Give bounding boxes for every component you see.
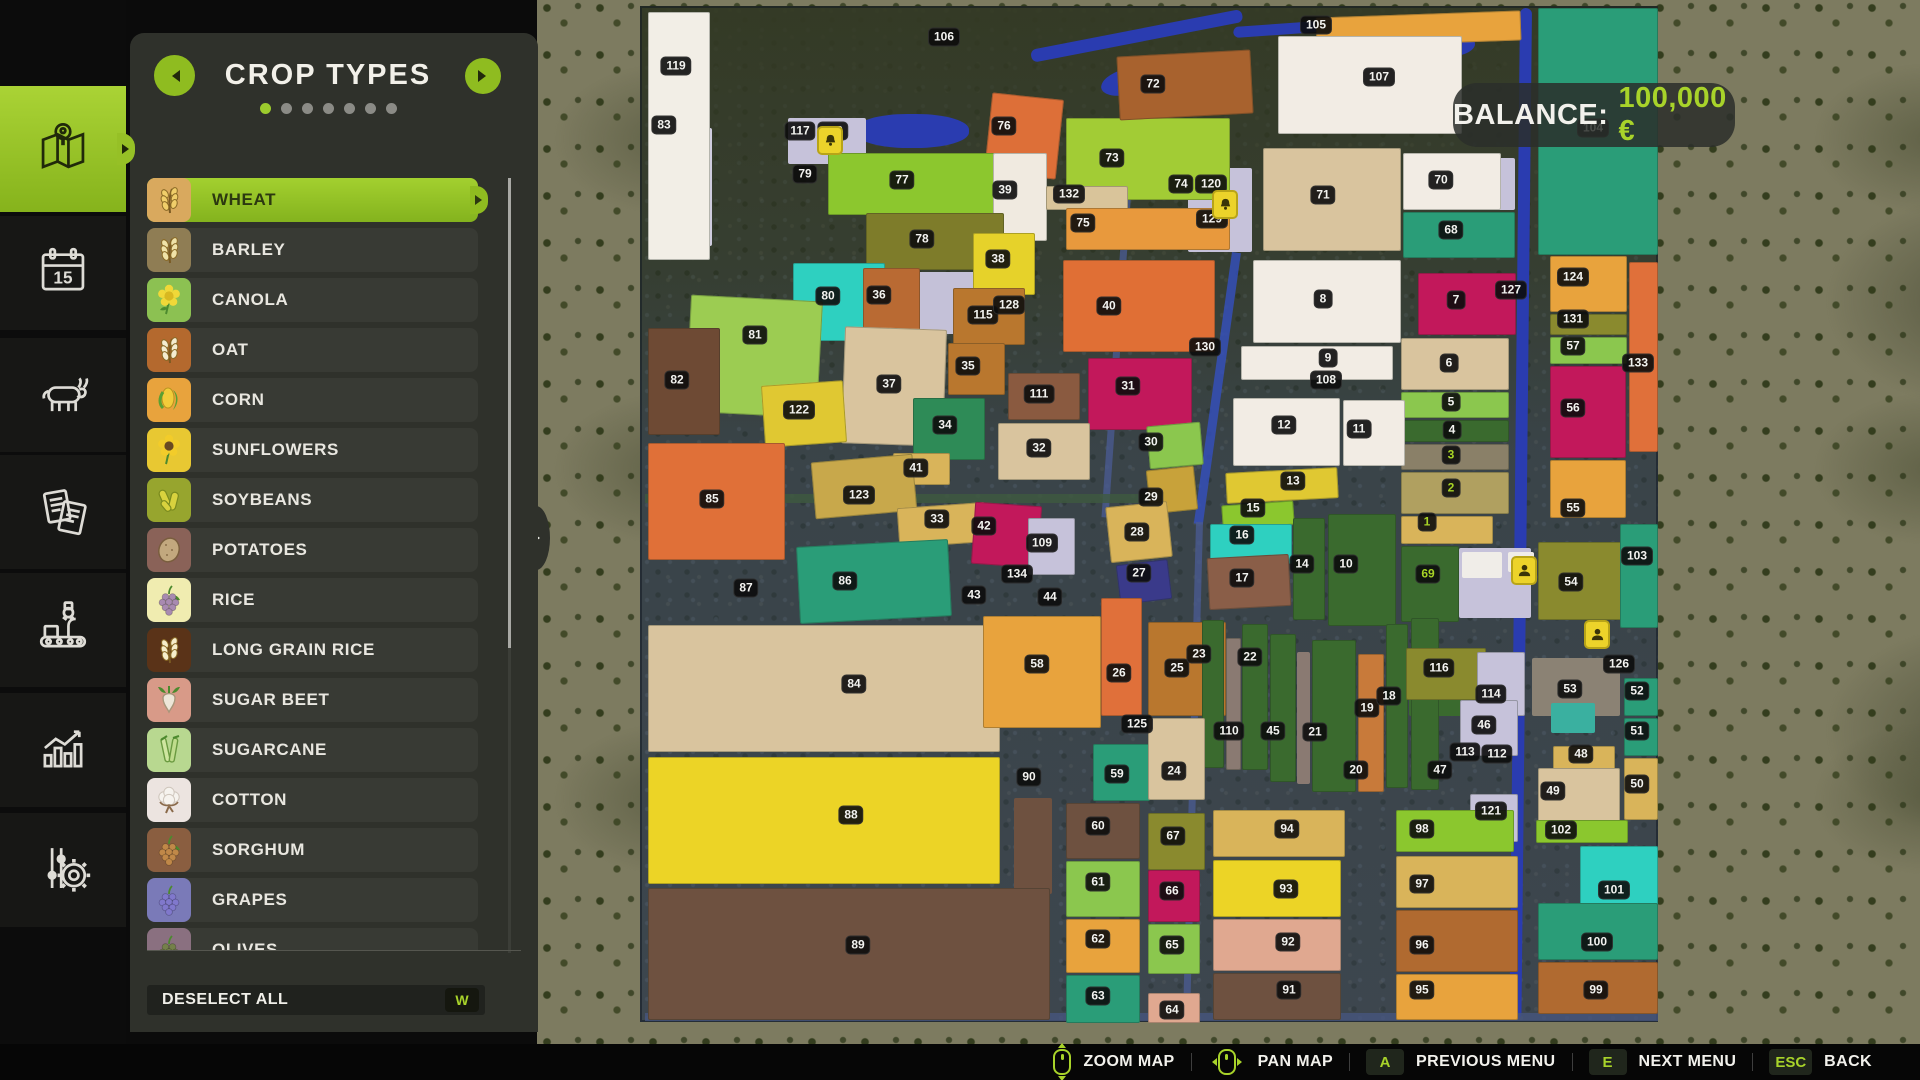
person-map-marker-icon[interactable] xyxy=(1511,556,1537,585)
field-number-badge: 30 xyxy=(1138,433,1163,452)
wheat-icon xyxy=(147,178,191,222)
crop-row-soybeans[interactable]: SOYBEANS xyxy=(147,478,478,522)
balance-value: 100,000 € xyxy=(1618,82,1735,148)
field-number-badge: 56 xyxy=(1560,399,1585,418)
field-number-badge: 98 xyxy=(1409,820,1434,839)
field-number-badge: 125 xyxy=(1121,715,1153,734)
crop-row-long-grain-rice[interactable]: LONG GRAIN RICE xyxy=(147,628,478,672)
field-number-badge: 107 xyxy=(1363,68,1395,87)
mouse-pan-icon xyxy=(1208,1049,1246,1075)
field-number-badge: 3 xyxy=(1442,446,1461,465)
crop-row-cotton[interactable]: COTTON xyxy=(147,778,478,822)
field-number-badge: 1 xyxy=(1418,513,1437,532)
field-number-badge: 17 xyxy=(1229,569,1254,588)
map-field-72[interactable] xyxy=(1116,50,1253,121)
crop-label: SUNFLOWERS xyxy=(212,440,339,460)
field-number-badge: 29 xyxy=(1138,488,1163,507)
field-number-badge: 76 xyxy=(991,117,1016,136)
oat-icon xyxy=(147,328,191,372)
field-number-badge: 64 xyxy=(1159,1001,1184,1020)
field-number-badge: 18 xyxy=(1376,687,1401,706)
field-number-badge: 96 xyxy=(1409,936,1434,955)
field-number-badge: 113 xyxy=(1449,743,1480,762)
field-number-badge: 116 xyxy=(1423,659,1454,678)
field-number-badge: 97 xyxy=(1409,875,1434,894)
panel-collapse-handle[interactable] xyxy=(538,506,554,570)
map-field-19[interactable] xyxy=(1386,624,1408,788)
field-number-badge: 128 xyxy=(993,296,1025,315)
crop-label: POTATOES xyxy=(212,540,307,560)
field-number-badge: 87 xyxy=(733,579,758,598)
crop-row-olives[interactable]: OLIVES xyxy=(147,928,478,951)
field-number-badge: 35 xyxy=(955,357,980,376)
crop-row-potatoes[interactable]: POTATOES xyxy=(147,528,478,572)
field-number-badge: 25 xyxy=(1164,659,1189,678)
map-structure xyxy=(1297,652,1310,784)
field-number-badge: 46 xyxy=(1471,716,1496,735)
crop-label: SORGHUM xyxy=(212,840,305,860)
map-field-84[interactable] xyxy=(648,625,1000,752)
sidebar-item-settings[interactable] xyxy=(0,813,126,927)
crop-types-panel: CROP TYPES WHEATBARLEYCANOLAOATCORNSUNFL… xyxy=(130,33,538,1032)
map-field-31[interactable] xyxy=(1088,358,1192,430)
contracts-icon xyxy=(34,481,92,544)
crop-label: COTTON xyxy=(212,790,287,810)
field-number-badge: 130 xyxy=(1189,338,1221,357)
divider xyxy=(1752,1053,1753,1071)
field-number-badge: 22 xyxy=(1237,648,1262,667)
calendar-icon: 15 xyxy=(34,242,92,305)
field-number-badge: 55 xyxy=(1560,499,1585,518)
field-number-badge: 92 xyxy=(1275,933,1300,952)
field-number-badge: 91 xyxy=(1276,981,1301,1000)
crop-label: RICE xyxy=(212,590,255,610)
crop-row-sorghum[interactable]: SORGHUM xyxy=(147,828,478,872)
crop-row-barley[interactable]: BARLEY xyxy=(147,228,478,272)
field-number-badge: 62 xyxy=(1085,930,1110,949)
field-number-badge: 74 xyxy=(1168,175,1193,194)
pagination-dot-6 xyxy=(365,103,376,114)
crop-label: CORN xyxy=(212,390,264,410)
crop-row-oat[interactable]: OAT xyxy=(147,328,478,372)
field-number-badge: 101 xyxy=(1598,881,1630,900)
pagination-dots xyxy=(200,103,456,114)
potatoes-icon xyxy=(147,528,191,572)
chevron-right-icon xyxy=(478,70,492,82)
input-hint-bar: ZOOM MAPPAN MAPAPREVIOUS MENUENEXT MENUE… xyxy=(0,1044,1920,1080)
balance-display: BALANCE: 100,000 € xyxy=(1453,83,1735,147)
field-number-badge: 133 xyxy=(1622,354,1654,373)
field-number-badge: 88 xyxy=(838,806,863,825)
field-number-badge: 6 xyxy=(1440,354,1459,373)
map-field-23[interactable] xyxy=(1202,620,1224,768)
field-number-badge: 52 xyxy=(1624,682,1649,701)
field-number-badge: 102 xyxy=(1545,821,1577,840)
field-number-badge: 134 xyxy=(1001,565,1033,584)
crop-label: SUGARCANE xyxy=(212,740,327,760)
field-number-badge: 100 xyxy=(1581,933,1613,952)
chevron-left-icon xyxy=(166,70,180,82)
crop-label: CANOLA xyxy=(212,290,288,310)
field-number-badge: 79 xyxy=(792,165,817,184)
field-number-badge: 15 xyxy=(1240,499,1265,518)
svg-text:15: 15 xyxy=(53,267,73,287)
field-number-badge: 48 xyxy=(1568,745,1593,764)
sunflowers-icon xyxy=(147,428,191,472)
field-number-badge: 20 xyxy=(1343,761,1368,780)
field-number-badge: 119 xyxy=(660,57,691,76)
key-badge-a: A xyxy=(1366,1049,1404,1075)
deselect-all-label: DESELECT ALL xyxy=(162,991,288,1009)
prev-category-button[interactable] xyxy=(154,55,195,96)
crop-row-rice[interactable]: RICE xyxy=(147,578,478,622)
field-number-badge: 43 xyxy=(961,586,986,605)
field-number-badge: 4 xyxy=(1443,421,1462,440)
next-category-button[interactable] xyxy=(465,58,501,94)
crop-row-sugar-beet[interactable]: SUGAR BEET xyxy=(147,678,478,722)
field-number-badge: 38 xyxy=(985,250,1010,269)
map-structure xyxy=(1014,798,1052,894)
field-number-badge: 121 xyxy=(1475,802,1507,821)
animals-icon xyxy=(34,364,92,427)
hint-next-menu: ENEXT MENU xyxy=(1589,1049,1737,1075)
map-field-45[interactable] xyxy=(1270,634,1296,782)
field-number-badge: 114 xyxy=(1475,685,1506,704)
field-number-badge: 73 xyxy=(1099,149,1124,168)
field-number-badge: 44 xyxy=(1037,588,1062,607)
map-field-22[interactable] xyxy=(1242,624,1268,770)
bell-map-marker-icon[interactable] xyxy=(1212,190,1238,219)
sidebar-item-animals[interactable] xyxy=(0,338,126,452)
pagination-dot-4 xyxy=(323,103,334,114)
map-structure xyxy=(1551,703,1595,733)
crop-row-sunflowers[interactable]: SUNFLOWERS xyxy=(147,428,478,472)
field-number-badge: 111 xyxy=(1024,385,1055,404)
crop-label: BARLEY xyxy=(212,240,286,260)
field-number-badge: 131 xyxy=(1557,310,1589,329)
field-number-badge: 93 xyxy=(1273,880,1298,899)
field-number-badge: 109 xyxy=(1026,534,1058,553)
sorghum-icon xyxy=(147,828,191,872)
field-number-badge: 10 xyxy=(1333,555,1358,574)
field-number-badge: 94 xyxy=(1274,820,1299,839)
field-number-badge: 33 xyxy=(924,510,949,529)
balance-label: BALANCE: xyxy=(1453,99,1608,132)
crop-row-corn[interactable]: CORN xyxy=(147,378,478,422)
pagination-dot-7 xyxy=(386,103,397,114)
field-number-badge: 23 xyxy=(1186,645,1211,664)
scrollbar-thumb[interactable] xyxy=(508,178,511,648)
crop-row-canola[interactable]: CANOLA xyxy=(147,278,478,322)
field-number-badge: 63 xyxy=(1085,987,1110,1006)
olives-icon xyxy=(147,928,191,951)
crop-row-wheat[interactable]: WHEAT xyxy=(147,178,478,222)
field-number-badge: 86 xyxy=(832,572,857,591)
hint-label: ZOOM MAP xyxy=(1083,1053,1174,1071)
pagination-dot-5 xyxy=(344,103,355,114)
water xyxy=(855,114,969,148)
crop-label: SOYBEANS xyxy=(212,490,312,510)
sidebar-item-map[interactable] xyxy=(0,86,126,212)
field-number-badge: 47 xyxy=(1427,761,1452,780)
game-screen: 1198311711810676737739132757838798036115… xyxy=(0,0,1920,1080)
crop-label: OAT xyxy=(212,340,248,360)
field-number-badge: 90 xyxy=(1016,768,1041,787)
crop-label: LONG GRAIN RICE xyxy=(212,640,375,660)
field-number-badge: 80 xyxy=(815,287,840,306)
field-number-badge: 69 xyxy=(1415,565,1440,584)
field-number-badge: 70 xyxy=(1428,171,1453,190)
field-number-badge: 34 xyxy=(932,416,957,435)
crop-list: WHEATBARLEYCANOLAOATCORNSUNFLOWERSSOYBEA… xyxy=(130,163,538,951)
field-number-badge: 72 xyxy=(1140,75,1165,94)
field-number-badge: 31 xyxy=(1115,377,1140,396)
pagination-dot-2 xyxy=(281,103,292,114)
canola-icon xyxy=(147,278,191,322)
field-number-badge: 66 xyxy=(1159,882,1184,901)
statistics-icon xyxy=(34,719,92,782)
field-number-badge: 95 xyxy=(1409,981,1434,1000)
map-field-86[interactable] xyxy=(796,539,952,624)
divider xyxy=(1191,1053,1192,1071)
sidebar-item-production[interactable] xyxy=(0,573,126,687)
field-number-badge: 106 xyxy=(928,28,960,47)
field-number-badge: 11 xyxy=(1347,420,1372,439)
key-badge-e: E xyxy=(1589,1049,1627,1075)
field-number-badge: 59 xyxy=(1104,765,1129,784)
field-number-badge: 108 xyxy=(1310,371,1342,390)
field-number-badge: 7 xyxy=(1447,291,1466,310)
map-field-119[interactable] xyxy=(648,12,710,260)
field-number-badge: 5 xyxy=(1442,393,1461,412)
panel-title: CROP TYPES xyxy=(200,59,456,92)
grapes-icon xyxy=(147,878,191,922)
map-structure xyxy=(1462,552,1502,578)
field-number-badge: 49 xyxy=(1540,782,1565,801)
field-number-badge: 126 xyxy=(1603,655,1635,674)
field-number-badge: 8 xyxy=(1314,290,1333,309)
field-number-badge: 112 xyxy=(1481,745,1512,764)
corn-icon xyxy=(147,378,191,422)
field-number-badge: 65 xyxy=(1159,936,1184,955)
divider xyxy=(1572,1053,1573,1071)
pagination-dot-1 xyxy=(260,103,271,114)
mouse-scroll-icon xyxy=(1053,1039,1071,1080)
cotton-icon xyxy=(147,778,191,822)
production-icon xyxy=(34,599,92,662)
field-number-badge: 32 xyxy=(1026,439,1051,458)
field-number-badge: 13 xyxy=(1280,472,1305,491)
field-number-badge: 54 xyxy=(1558,573,1583,592)
field-number-badge: 26 xyxy=(1106,664,1131,683)
rice-icon xyxy=(147,578,191,622)
field-number-badge: 78 xyxy=(909,230,934,249)
field-number-badge: 41 xyxy=(903,459,928,478)
sidebar-item-calendar[interactable]: 15 xyxy=(0,216,126,330)
crop-label: SUGAR BEET xyxy=(212,690,329,710)
field-number-badge: 122 xyxy=(783,401,815,420)
barley-icon xyxy=(147,228,191,272)
field-number-badge: 67 xyxy=(1160,827,1185,846)
map-field-88[interactable] xyxy=(648,757,1000,884)
field-number-badge: 16 xyxy=(1229,526,1254,545)
key-badge-esc: ESC xyxy=(1769,1049,1812,1075)
hint-previous-menu: APREVIOUS MENU xyxy=(1366,1049,1555,1075)
map-icon xyxy=(34,118,92,181)
field-number-badge: 71 xyxy=(1310,186,1335,205)
field-number-badge: 127 xyxy=(1495,281,1527,300)
field-number-badge: 83 xyxy=(651,116,676,135)
field-number-badge: 21 xyxy=(1302,723,1327,742)
field-number-badge: 42 xyxy=(971,517,996,536)
field-number-badge: 50 xyxy=(1624,775,1649,794)
main-menu-sidebar: 15 xyxy=(0,0,126,1044)
pagination-dot-3 xyxy=(302,103,313,114)
field-number-badge: 27 xyxy=(1126,564,1151,583)
field-number-badge: 117 xyxy=(784,122,815,141)
field-number-badge: 77 xyxy=(889,171,914,190)
field-number-badge: 53 xyxy=(1557,680,1582,699)
field-number-badge: 14 xyxy=(1289,555,1314,574)
field-number-badge: 9 xyxy=(1319,349,1338,368)
field-number-badge: 81 xyxy=(742,326,767,345)
field-number-badge: 84 xyxy=(841,675,866,694)
crop-label: WHEAT xyxy=(212,190,276,210)
hint-label: NEXT MENU xyxy=(1639,1053,1737,1071)
deselect-all-button[interactable]: DESELECT ALL W xyxy=(147,985,485,1015)
sidebar-item-statistics[interactable] xyxy=(0,693,126,807)
field-number-badge: 68 xyxy=(1438,221,1463,240)
field-number-badge: 123 xyxy=(843,486,875,505)
hint-pan-map: PAN MAP xyxy=(1208,1049,1333,1075)
field-number-badge: 85 xyxy=(699,490,724,509)
field-number-badge: 60 xyxy=(1085,817,1110,836)
map-field-26[interactable] xyxy=(1101,598,1142,716)
field-number-badge: 89 xyxy=(845,936,870,955)
hint-label: PREVIOUS MENU xyxy=(1416,1053,1555,1071)
selected-row-arrow xyxy=(470,186,488,214)
field-number-badge: 110 xyxy=(1213,722,1244,741)
field-number-badge: 82 xyxy=(664,371,689,390)
soybeans-icon xyxy=(147,478,191,522)
field-number-badge: 51 xyxy=(1624,722,1649,741)
field-number-badge: 124 xyxy=(1557,268,1589,287)
field-number-badge: 105 xyxy=(1300,16,1332,35)
crop-label: GRAPES xyxy=(212,890,287,910)
field-number-badge: 37 xyxy=(876,375,901,394)
field-number-badge: 57 xyxy=(1560,337,1585,356)
field-number-badge: 75 xyxy=(1070,214,1095,233)
hint-label: BACK xyxy=(1824,1053,1872,1071)
crop-row-grapes[interactable]: GRAPES xyxy=(147,878,478,922)
map-field-1[interactable] xyxy=(1401,516,1493,544)
field-number-badge: 132 xyxy=(1053,185,1085,204)
sugar-beet-icon xyxy=(147,678,191,722)
deselect-all-key-hint: W xyxy=(445,988,479,1012)
map-field-69[interactable] xyxy=(1401,546,1459,622)
settings-icon xyxy=(34,839,92,902)
field-number-badge: 40 xyxy=(1096,297,1121,316)
divider xyxy=(1349,1053,1350,1071)
map-field-24[interactable] xyxy=(1148,718,1205,800)
field-number-badge: 28 xyxy=(1124,523,1149,542)
field-number-badge: 24 xyxy=(1161,762,1186,781)
field-number-badge: 58 xyxy=(1024,655,1049,674)
field-number-badge: 61 xyxy=(1085,873,1110,892)
hint-back: ESCBACK xyxy=(1769,1049,1872,1075)
sidebar-item-contracts[interactable] xyxy=(0,455,126,569)
field-number-badge: 99 xyxy=(1583,981,1608,1000)
hint-zoom-map: ZOOM MAP xyxy=(1053,1039,1174,1080)
long-grain-rice-icon xyxy=(147,628,191,672)
field-number-badge: 45 xyxy=(1260,722,1285,741)
field-number-badge: 36 xyxy=(866,286,891,305)
field-number-badge: 103 xyxy=(1621,547,1653,566)
field-number-badge: 2 xyxy=(1442,479,1461,498)
person-map-marker-icon[interactable] xyxy=(1584,620,1610,649)
hint-label: PAN MAP xyxy=(1258,1053,1333,1071)
map-field-103[interactable] xyxy=(1620,524,1658,628)
field-number-badge: 39 xyxy=(992,181,1017,200)
crop-row-sugarcane[interactable]: SUGARCANE xyxy=(147,728,478,772)
sugarcane-icon xyxy=(147,728,191,772)
field-number-badge: 12 xyxy=(1271,416,1296,435)
list-divider xyxy=(147,950,521,951)
bell-map-marker-icon[interactable] xyxy=(817,126,843,155)
